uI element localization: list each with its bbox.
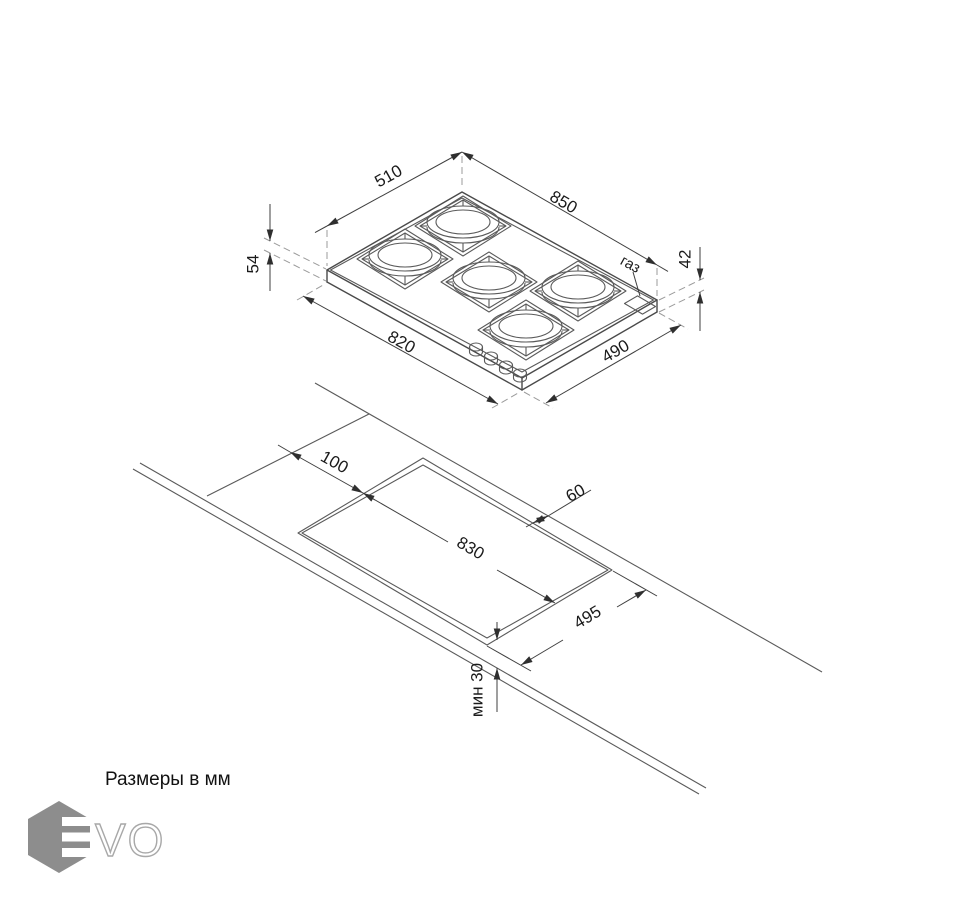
gas-label: газ [617,252,643,277]
dimension-height-54: 54 [243,204,326,291]
dim-60-label: 60 [563,480,589,506]
dim-min30-label: мин 30 [467,663,486,717]
units-note: Размеры в мм [105,769,231,790]
hob-isometric-view: газ 510 850 54 [243,152,704,408]
dimension-top-width-850: 850 [462,152,668,296]
dimension-cutout-width-495: 495 [487,571,657,671]
dim-490-label: 490 [598,336,632,367]
dimension-back-offset-60: 60 [526,480,591,527]
technical-drawing: газ 510 850 54 [0,0,960,900]
dim-495-label: 495 [570,602,604,633]
logo-letters: VO [95,814,165,866]
dim-820-label: 820 [384,327,418,357]
dimension-top-depth-510: 510 [315,152,462,266]
dimension-height-42: 42 [659,247,704,331]
cutout-opening [298,458,612,645]
dim-42-label: 42 [675,250,694,269]
dimension-cutout-length-830: 830 [363,493,555,603]
burner-back-left [415,196,511,256]
logo-e-bars [62,817,93,857]
dimension-end-offset-100: 100 [278,445,375,500]
countertop-cutout-view: 100 830 495 60 мин 30 [133,383,822,794]
dim-850-label: 850 [546,187,580,218]
evo-logo: VO [28,801,165,873]
burner-center [441,252,537,312]
dim-100-label: 100 [317,447,351,477]
drawing-page: газ 510 850 54 [0,0,960,900]
dim-510-label: 510 [371,161,405,191]
dim-54-label: 54 [243,255,262,274]
burner-left [357,229,453,289]
dimension-bottom-width-820: 820 [297,284,520,408]
dimension-bottom-depth-490: 490 [524,313,688,408]
countertop-edges [133,383,822,794]
dim-830-label: 830 [453,533,487,564]
